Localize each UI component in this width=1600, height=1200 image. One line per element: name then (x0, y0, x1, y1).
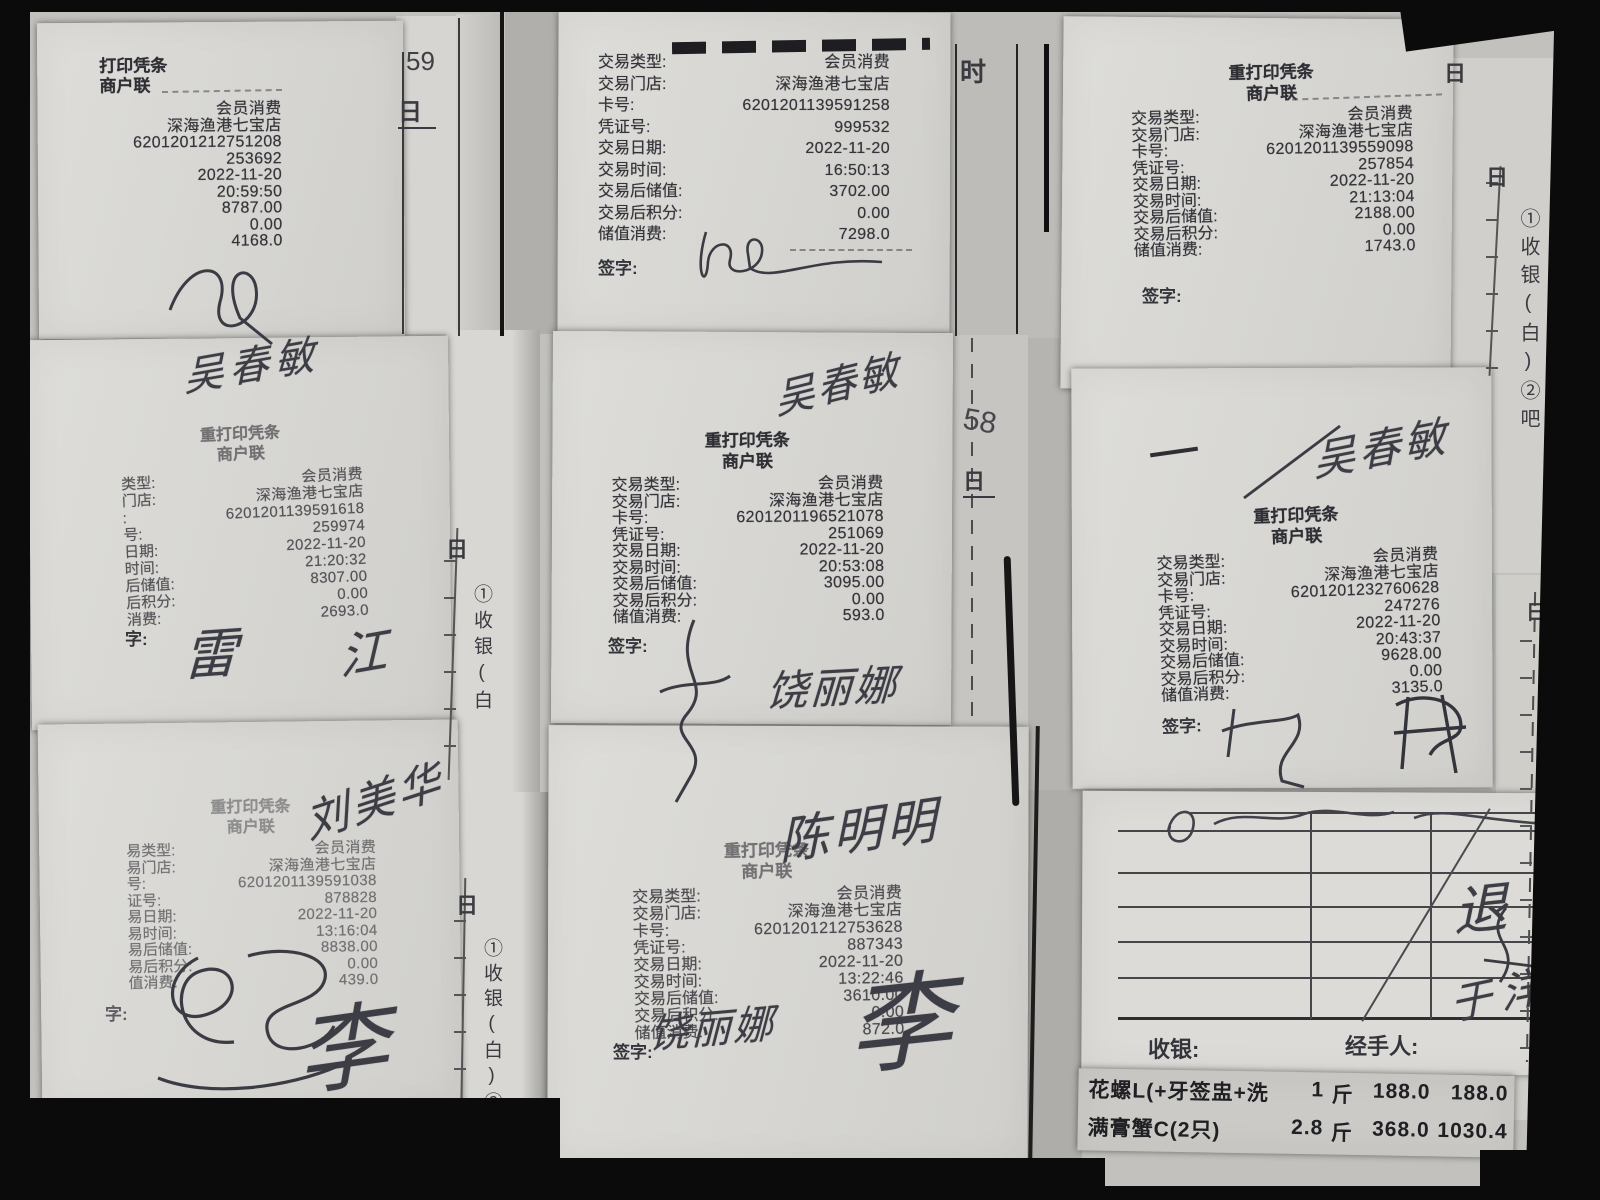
field-label: 交易后储值: (598, 181, 682, 203)
field-label: 凭证号: (612, 527, 665, 544)
signature-jiang: 江 (340, 610, 387, 689)
field-label: 交易日期: (633, 956, 702, 974)
field-label: 储值消费: (598, 224, 666, 246)
signature-scribble (1212, 695, 1330, 793)
item-amount: 188.0 (1430, 1081, 1509, 1113)
item-name: 满膏蟹C(2只) (1087, 1112, 1281, 1146)
field-label: 门店: (122, 492, 157, 510)
field-label: 类型: (121, 475, 156, 493)
sign-label: 字: (125, 625, 148, 650)
signature-rao-lina: 饶丽娜 (649, 991, 776, 1060)
form-tick-marks (1486, 182, 1498, 382)
field-label: 号: (123, 526, 143, 544)
day-label: 日 (456, 888, 478, 920)
signature-scribble (1470, 900, 1540, 992)
copy-routing-text: ①收银(白 (468, 584, 495, 716)
field-value: 20:59:50 (217, 184, 283, 201)
copy-routing-text: ①收银(白)②吧 (1514, 208, 1543, 436)
field-label: 卡号: (598, 95, 634, 117)
scan-edge (0, 0, 1600, 12)
receipt-row: 凭证号:999532 (598, 117, 890, 139)
signature-rao-lina: 饶丽娜 (765, 651, 900, 719)
field-label: 交易日期: (598, 138, 666, 160)
item-qty: 1 (1281, 1078, 1324, 1109)
receipt-header: 重打印凭条 商户联 (611, 429, 883, 473)
sign-label: 签字: (1142, 282, 1182, 307)
signature-scribble (138, 938, 348, 1110)
handwritten-note-scribble (1152, 796, 1552, 856)
field-label: 交易时间: (634, 973, 703, 991)
item-amount: 1030.4 (1429, 1119, 1508, 1151)
receipt-row: 交易类型:会员消费 (598, 52, 890, 74)
receipt-header-line: 商户联 (99, 75, 281, 97)
receipt-row: 交易日期:2022-11-20 (598, 138, 890, 160)
field-label: 后储值: (125, 576, 175, 595)
receipt-header: 重打印凭条 商户联 (1130, 59, 1413, 107)
field-label: 交易类型: (612, 478, 681, 495)
field-value: 2022-11-20 (799, 542, 884, 559)
receipt-middle-center: 重打印凭条 商户联 交易类型:会员消费交易门店:深海渔港七宝店卡号:620120… (611, 429, 885, 627)
paper-edge-line (955, 44, 957, 336)
item-lines: 花螺L(+牙签盅+洗 1 斤 188.0 188.0 满膏蟹C(2只) 2.8 … (1087, 1074, 1508, 1151)
field-label: 交易后积分: (598, 203, 682, 225)
margin-strip (446, 330, 540, 812)
day-label: 日 (963, 464, 995, 498)
field-label: 交易门店: (612, 494, 681, 511)
day-label: 日 (1486, 160, 1508, 192)
field-value: 会员消费 (818, 476, 884, 493)
field-value: 6201201139591258 (742, 95, 890, 117)
signature-scribble (632, 612, 752, 807)
field-value: 深海渔港七宝店 (775, 74, 890, 96)
field-value: 会员消费 (824, 52, 890, 74)
field-value: 6201201196521078 (736, 509, 884, 527)
field-label: 交易类型: (598, 52, 666, 74)
field-label: 时间: (124, 560, 159, 578)
field-value: 0.00 (250, 217, 283, 234)
page-number-fragment: 59 (406, 46, 435, 77)
signature-scribble (160, 248, 310, 348)
scan-edge (0, 0, 30, 1200)
signature-scribble (1382, 685, 1474, 777)
field-label: 易门店: (126, 860, 175, 877)
field-label: 交易日期: (612, 544, 681, 561)
receipt-row: 交易后储值:3095.00 (612, 575, 884, 594)
field-label: 证号: (127, 893, 161, 910)
receipt-header-line: 商户联 (611, 450, 883, 473)
receipt-row: 交易后储值:3702.00 (598, 181, 890, 203)
field-value: 深海渔港七宝店 (788, 902, 903, 921)
item-name: 花螺L(+牙签盅+洗 (1088, 1074, 1282, 1108)
field-value: 1743.0 (1364, 238, 1416, 256)
field-label: 卡号: (1157, 589, 1194, 607)
receipt-header-line: 打印凭条 (99, 55, 281, 77)
field-label: 交易后储值: (612, 576, 697, 593)
item-qty: 2.8 (1280, 1116, 1323, 1147)
field-value: 251069 (828, 525, 884, 542)
cashier-label: 收银: (1148, 1032, 1199, 1064)
receipt-rows: 会员消费深海渔港七宝店62012012127512082536922022-11… (100, 101, 283, 251)
sign-label: 签字: (613, 1038, 653, 1063)
receipt-row: 交易后积分:0.00 (598, 203, 890, 225)
receipt-rows: 交易类型:会员消费交易门店:深海渔港七宝店卡号:6201201139559098… (1131, 106, 1416, 260)
field-value: 2022-11-20 (197, 167, 282, 184)
field-value: 2188.00 (1354, 205, 1415, 223)
item-unit: 斤 (1324, 1079, 1362, 1110)
scanned-receipts-page: 打印凭条 商户联 会员消费深海渔港七宝店62012012127512082536… (0, 0, 1600, 1200)
sign-label: 签字: (1162, 711, 1203, 737)
day-label: 日 (446, 532, 468, 564)
sign-label: 签字: (598, 254, 638, 279)
receipt-top-left: 打印凭条 商户联 会员消费深海渔港七宝店62012012127512082536… (99, 55, 283, 251)
field-label: 交易后积分: (613, 593, 698, 610)
receipt-row: 卡号:6201201139591258 (598, 95, 890, 117)
field-label: 卡号: (633, 923, 670, 941)
field-label: 易日期: (127, 909, 176, 926)
sign-label: 字: (105, 1000, 128, 1025)
receipt-rows: 交易类型:会员消费交易门店:深海渔港七宝店卡号:6201201196521078… (612, 476, 885, 627)
scan-edge (545, 1158, 1105, 1200)
margin-strip (456, 14, 502, 336)
receipt-rows: 交易类型:会员消费交易门店:深海渔港七宝店卡号:6201201139591258… (598, 52, 890, 246)
handler-label: 经手人: (1345, 1029, 1418, 1061)
field-value: 会员消费 (1347, 106, 1413, 124)
receipt-middle-right: 重打印凭条 商户联 交易类型:会员消费交易门店:深海渔港七宝店卡号:620120… (1155, 500, 1444, 705)
field-value: 8787.00 (222, 200, 283, 217)
paper-edge-line (458, 18, 460, 336)
field-value: 999532 (834, 117, 890, 139)
margin-strip (950, 335, 1028, 727)
field-label: 日期: (124, 543, 159, 561)
field-value: 0.00 (337, 585, 369, 603)
field-label: 交易门店: (632, 905, 701, 923)
field-value: 0.00 (852, 591, 885, 608)
signature-lei: 雷 (182, 608, 239, 691)
field-label: 交易类型: (632, 888, 701, 906)
field-value: 16:50:13 (825, 160, 890, 182)
receipt-middle-left: 重打印凭条 商户联 类型:会员消费门店:深海渔港七宝店:620120113959… (119, 420, 369, 629)
signature-lead-stroke (1240, 420, 1345, 502)
field-value: 6201201212751208 (133, 134, 282, 152)
item-price: 368.0 (1360, 1117, 1430, 1148)
partial-character: 时 (960, 52, 986, 89)
paper-gap (505, 12, 561, 334)
field-label: 号: (127, 877, 146, 894)
signature-li: 李 (845, 934, 955, 1097)
field-value: 593.0 (843, 608, 885, 625)
receipt-top-right: 重打印凭条 商户联 交易类型:会员消费交易门店:深海渔港七宝店卡号:620120… (1130, 59, 1416, 260)
field-value: 3702.00 (829, 181, 890, 203)
receipt-header-line: 重打印凭条 (611, 429, 883, 452)
signature-scribble (690, 222, 890, 300)
field-value: 会员消费 (836, 885, 902, 903)
paper-edge-line (1044, 44, 1049, 232)
field-label: 储值消费: (1134, 243, 1203, 261)
scan-edge (0, 1098, 560, 1200)
field-label: 易类型: (126, 843, 175, 860)
paper-edge-dashed (971, 338, 973, 724)
field-label: 卡号: (1132, 144, 1169, 161)
page-number-fragment: 58 (960, 402, 999, 441)
field-value: 0.00 (857, 203, 890, 225)
field-label: 交易门店: (598, 74, 666, 96)
receipt-top-center: 交易类型:会员消费交易门店:深海渔港七宝店卡号:6201201139591258… (598, 52, 890, 246)
receipt-rows: 类型:会员消费门店:深海渔港七宝店:6201201139591618号:2599… (121, 466, 369, 629)
field-value: 会员消费 (216, 101, 282, 118)
day-label: 日 (398, 92, 436, 129)
field-label: 凭证号: (598, 117, 650, 139)
field-label: 卡号: (612, 511, 649, 528)
paper-edge-line (500, 10, 504, 336)
field-value: 20:53:08 (819, 558, 885, 575)
receipt-rows: 交易类型:会员消费交易门店:深海渔港七宝店卡号:6201201232760628… (1156, 547, 1443, 705)
item-price: 188.0 (1361, 1079, 1431, 1110)
field-value: 2022-11-20 (805, 138, 890, 160)
form-tick-marks (444, 560, 456, 780)
field-label: 凭证号: (633, 939, 686, 957)
field-label: : (122, 510, 127, 527)
item-unit: 斤 (1323, 1117, 1361, 1148)
field-label: 交易时间: (598, 160, 666, 182)
field-value: 3095.00 (824, 575, 885, 592)
field-label: 交易时间: (612, 560, 681, 577)
paper-edge-line (1016, 44, 1018, 334)
field-value: 253692 (226, 151, 282, 168)
field-label: 后积分: (126, 593, 176, 612)
receipt-row: 交易时间:16:50:13 (598, 160, 890, 182)
receipt-row: 交易门店:深海渔港七宝店 (598, 74, 890, 96)
scan-edge (1480, 1150, 1600, 1200)
day-label: 日 (1444, 56, 1466, 88)
